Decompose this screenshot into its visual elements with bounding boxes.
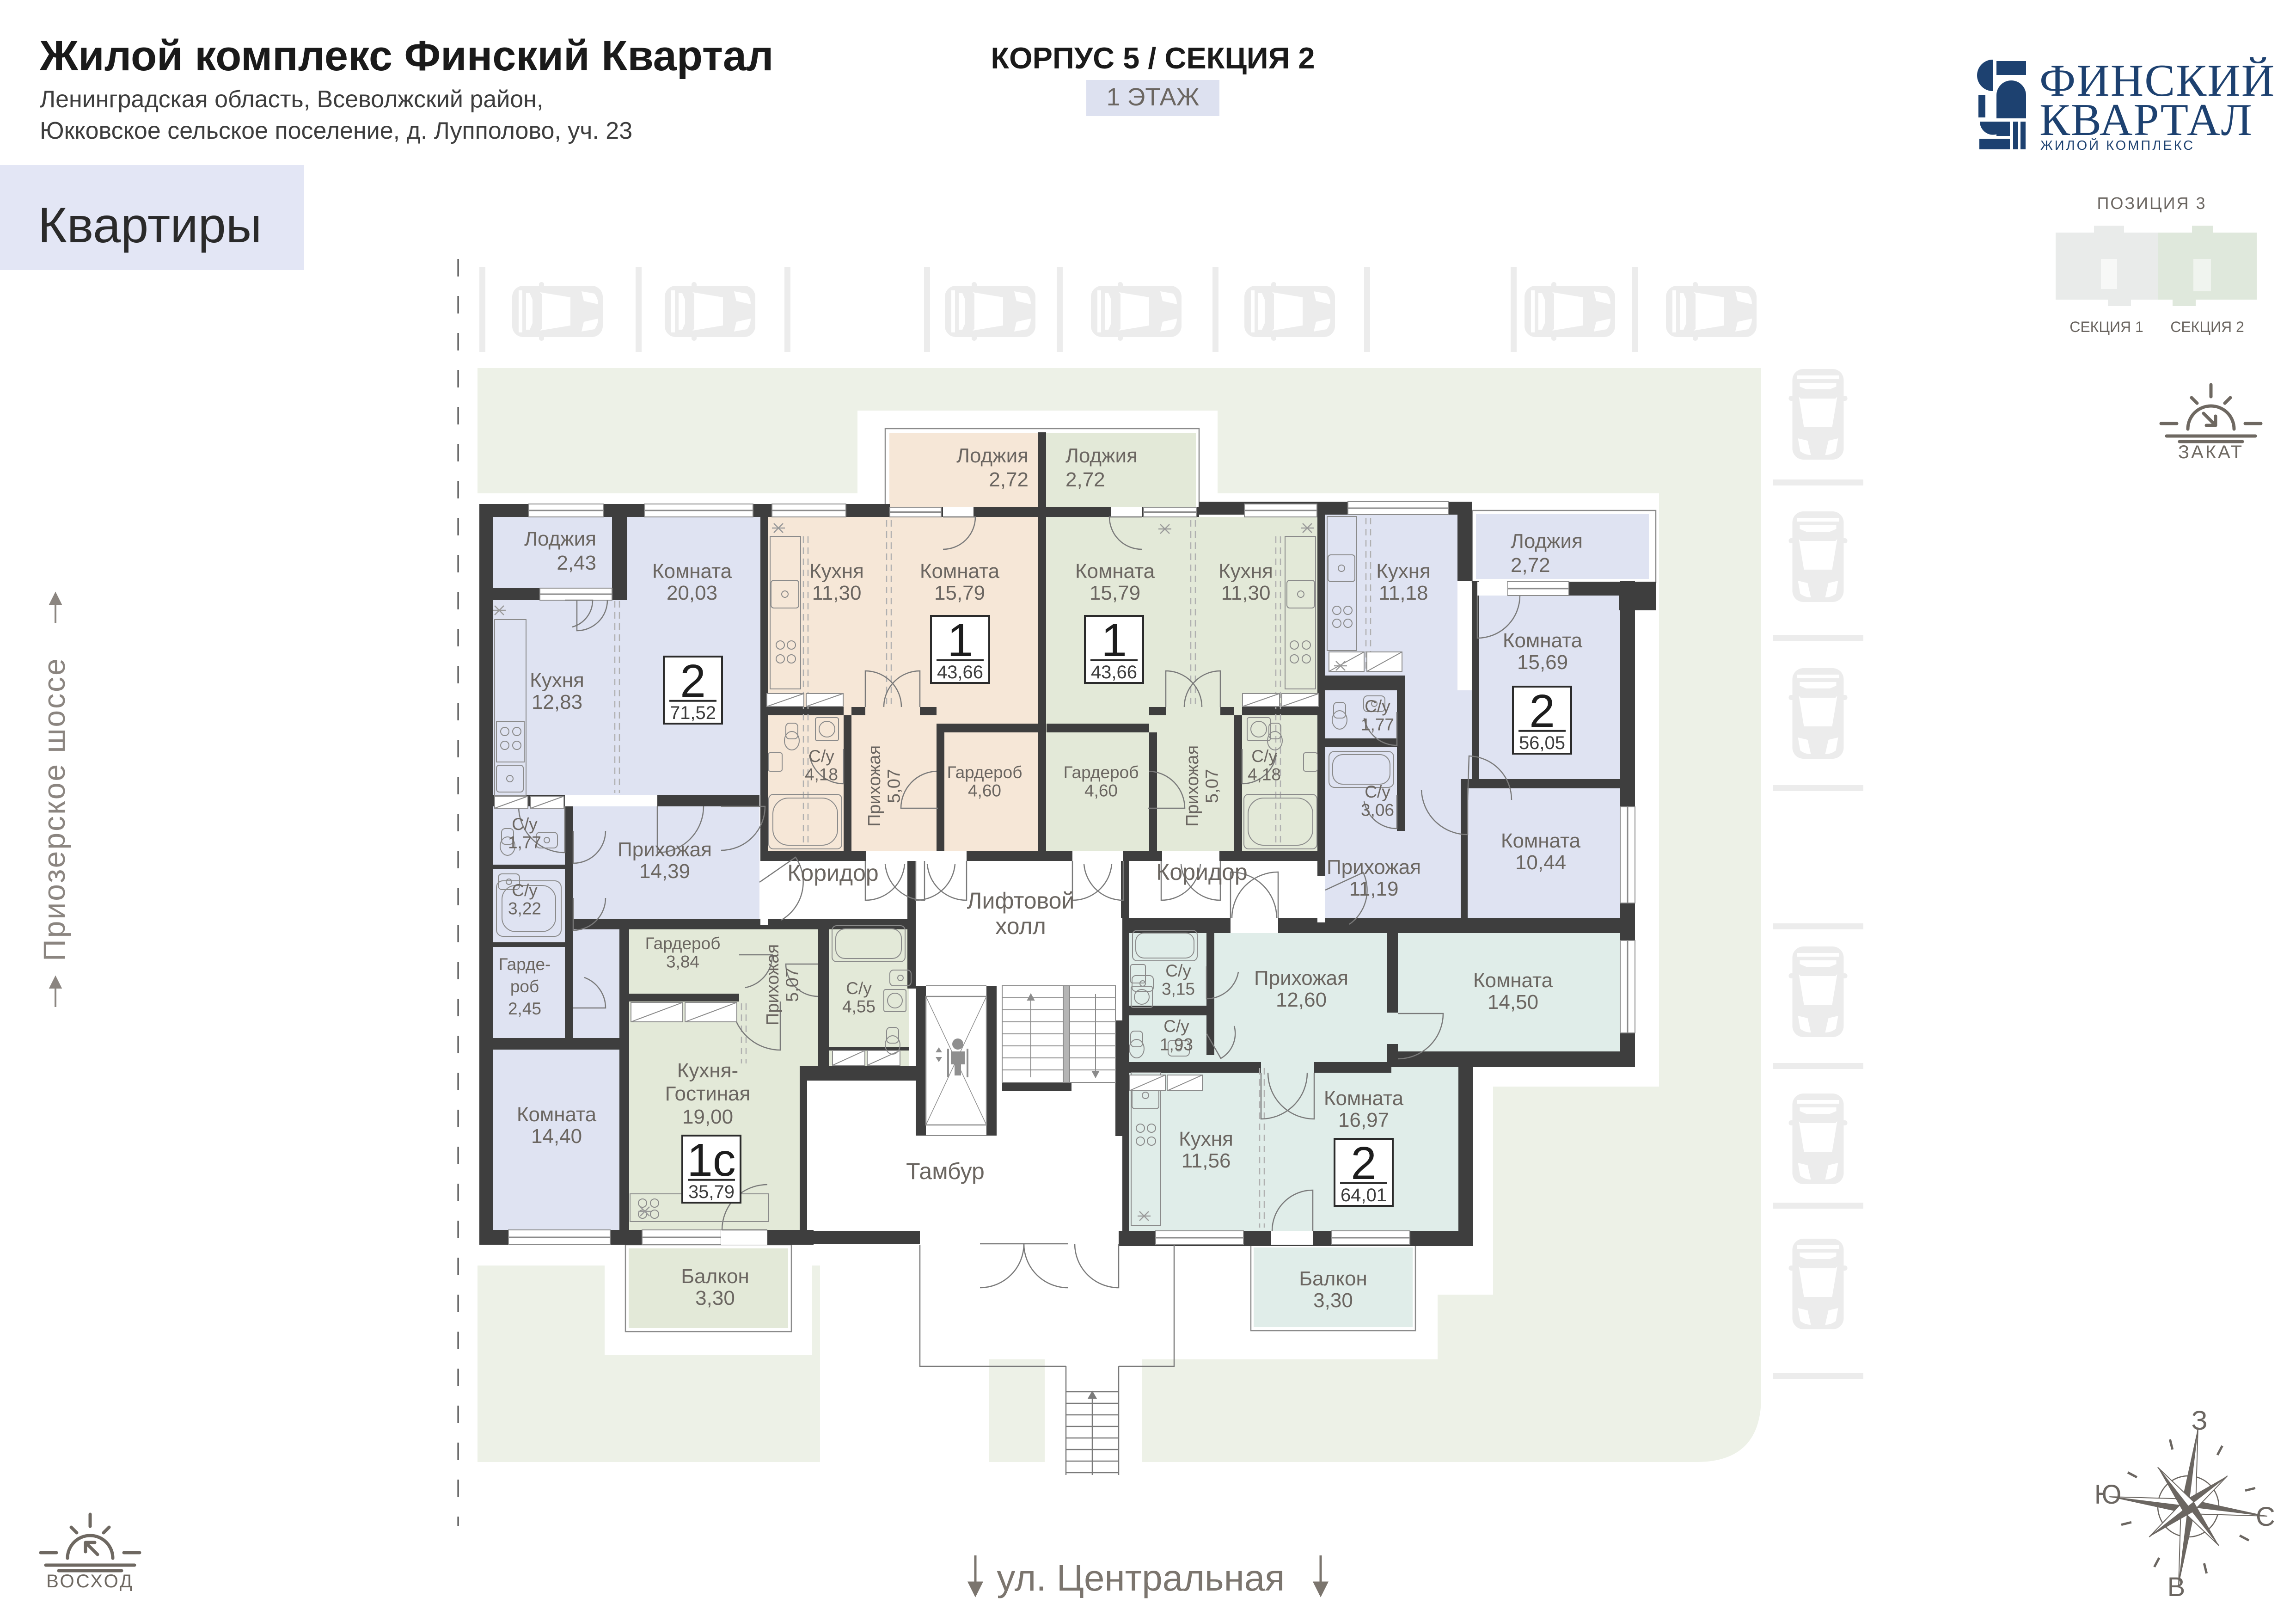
svg-text:14,40: 14,40 <box>531 1125 582 1148</box>
svg-text:Гардероб: Гардероб <box>645 934 721 953</box>
svg-text:Лоджия: Лоджия <box>1511 530 1583 553</box>
svg-text:Гарде-: Гарде- <box>499 955 551 974</box>
svg-text:56,05: 56,05 <box>1519 733 1565 753</box>
svg-text:Лоджия: Лоджия <box>1065 444 1138 467</box>
svg-text:Комната: Комната <box>1501 829 1581 852</box>
svg-text:Приозерское шоссе: Приозерское шоссе <box>37 657 71 961</box>
svg-text:Гардероб: Гардероб <box>947 763 1022 782</box>
svg-text:19,00: 19,00 <box>682 1106 733 1128</box>
svg-text:16,97: 16,97 <box>1338 1109 1389 1131</box>
svg-text:2: 2 <box>1529 685 1555 737</box>
svg-text:4,18: 4,18 <box>1248 765 1281 784</box>
svg-text:5,07: 5,07 <box>885 769 904 803</box>
svg-text:20,03: 20,03 <box>667 582 717 604</box>
svg-text:11,19: 11,19 <box>1349 878 1399 900</box>
svg-text:ул. Центральная: ул. Центральная <box>997 1557 1285 1598</box>
svg-text:роб: роб <box>510 977 539 996</box>
svg-text:71,52: 71,52 <box>670 703 716 723</box>
svg-text:4,60: 4,60 <box>968 781 1001 800</box>
svg-text:3,06: 3,06 <box>1361 801 1394 820</box>
svg-text:С/у: С/у <box>1365 697 1390 716</box>
svg-text:4,60: 4,60 <box>1084 781 1118 800</box>
svg-text:С: С <box>2256 1502 2275 1532</box>
svg-text:Прихожая: Прихожая <box>1327 856 1421 879</box>
svg-text:Квартиры: Квартиры <box>38 197 262 253</box>
svg-text:4,18: 4,18 <box>805 765 838 784</box>
svg-text:3,22: 3,22 <box>508 899 541 918</box>
svg-text:11,18: 11,18 <box>1379 582 1428 604</box>
svg-text:15,69: 15,69 <box>1517 651 1568 674</box>
svg-text:С/у: С/у <box>1365 782 1390 801</box>
svg-text:5,07: 5,07 <box>1203 769 1222 803</box>
svg-text:ПОЗИЦИЯ 3: ПОЗИЦИЯ 3 <box>2097 194 2206 213</box>
svg-text:4,55: 4,55 <box>842 997 876 1016</box>
svg-text:3,84: 3,84 <box>666 952 699 971</box>
svg-text:2,43: 2,43 <box>557 552 596 574</box>
svg-text:11,30: 11,30 <box>1221 582 1271 604</box>
svg-text:3,30: 3,30 <box>695 1287 735 1309</box>
svg-text:С/у: С/у <box>846 979 872 998</box>
svg-text:2: 2 <box>680 655 706 707</box>
svg-text:Тамбур: Тамбур <box>906 1158 985 1184</box>
svg-text:В: В <box>2167 1572 2186 1602</box>
svg-text:Лифтовой: Лифтовой <box>967 888 1075 914</box>
svg-text:С/у: С/у <box>512 815 538 834</box>
svg-text:Прихожая: Прихожая <box>1183 745 1202 827</box>
svg-text:Прихожая: Прихожая <box>1254 967 1348 989</box>
svg-text:Ленинградская область, Всеволж: Ленинградская область, Всеволжский район… <box>40 86 543 113</box>
svg-text:З: З <box>2191 1406 2207 1436</box>
svg-text:11,56: 11,56 <box>1182 1149 1231 1172</box>
svg-text:Гостиная: Гостиная <box>665 1082 751 1105</box>
svg-text:Жилой комплекс Финский Квартал: Жилой комплекс Финский Квартал <box>39 32 774 80</box>
svg-text:ЖИЛОЙ КОМПЛЕКС: ЖИЛОЙ КОМПЛЕКС <box>2040 137 2195 153</box>
svg-text:СЕКЦИЯ 2: СЕКЦИЯ 2 <box>2170 319 2244 335</box>
svg-text:2: 2 <box>1351 1137 1377 1189</box>
svg-text:1: 1 <box>1101 614 1127 666</box>
svg-text:КВАРТАЛ: КВАРТАЛ <box>2039 95 2253 145</box>
svg-text:1с: 1с <box>687 1134 736 1186</box>
svg-text:12,83: 12,83 <box>532 691 582 713</box>
svg-text:1: 1 <box>947 614 973 666</box>
svg-text:2,72: 2,72 <box>1065 468 1105 491</box>
svg-text:СЕКЦИЯ 1: СЕКЦИЯ 1 <box>2069 319 2143 335</box>
svg-text:10,44: 10,44 <box>1515 851 1566 874</box>
svg-text:Кухня: Кухня <box>1179 1128 1233 1150</box>
svg-text:1,93: 1,93 <box>1160 1035 1193 1054</box>
svg-text:1 ЭТАЖ: 1 ЭТАЖ <box>1107 83 1200 111</box>
svg-text:С/у: С/у <box>1163 1017 1189 1036</box>
svg-text:холл: холл <box>995 913 1046 939</box>
svg-text:Прихожая: Прихожая <box>618 838 712 861</box>
svg-text:15,79: 15,79 <box>1090 582 1140 604</box>
svg-text:64,01: 64,01 <box>1341 1185 1387 1205</box>
svg-text:Прихожая: Прихожая <box>763 944 783 1026</box>
svg-text:2,72: 2,72 <box>989 468 1029 491</box>
svg-text:С/у: С/у <box>1251 747 1277 766</box>
svg-text:2,72: 2,72 <box>1511 554 1550 577</box>
svg-text:Комната: Комната <box>1473 969 1553 992</box>
svg-text:Кухня: Кухня <box>809 560 864 583</box>
svg-text:Кухня: Кухня <box>1218 560 1273 583</box>
svg-text:Комната: Комната <box>1075 560 1155 583</box>
svg-text:Ю: Ю <box>2094 1480 2122 1510</box>
svg-text:Комната: Комната <box>920 560 1000 583</box>
svg-text:Лоджия: Лоджия <box>524 528 596 550</box>
svg-text:Лоджия: Лоджия <box>956 444 1029 467</box>
svg-text:Коридор: Коридор <box>787 860 878 886</box>
svg-text:Гардероб: Гардероб <box>1064 763 1139 782</box>
svg-text:Комната: Комната <box>652 560 732 583</box>
svg-text:Балкон: Балкон <box>1299 1267 1367 1290</box>
svg-text:Комната: Комната <box>1324 1087 1404 1110</box>
svg-text:КОРПУС 5 / СЕКЦИЯ 2: КОРПУС 5 / СЕКЦИЯ 2 <box>991 41 1315 75</box>
svg-text:2,45: 2,45 <box>508 999 541 1018</box>
svg-text:Комната: Комната <box>517 1103 597 1126</box>
svg-text:43,66: 43,66 <box>1091 662 1137 682</box>
svg-text:35,79: 35,79 <box>688 1182 735 1202</box>
svg-text:С/у: С/у <box>1165 961 1191 980</box>
svg-text:Кухня-: Кухня- <box>677 1059 738 1082</box>
svg-text:Кухня: Кухня <box>1376 560 1431 583</box>
svg-text:1,77: 1,77 <box>1361 715 1394 734</box>
svg-text:43,66: 43,66 <box>937 662 983 682</box>
svg-text:Юкковское сельское поселение,: Юкковское сельское поселение, д. Лупполо… <box>40 117 632 144</box>
svg-text:3,15: 3,15 <box>1162 980 1195 999</box>
svg-text:С/у: С/у <box>808 747 834 766</box>
svg-text:Кухня: Кухня <box>530 669 584 692</box>
svg-text:С/у: С/у <box>512 881 538 900</box>
svg-text:ВОСХОД: ВОСХОД <box>46 1571 134 1591</box>
svg-text:5,07: 5,07 <box>783 968 802 1002</box>
svg-text:Балкон: Балкон <box>681 1265 749 1288</box>
svg-text:11,30: 11,30 <box>812 582 862 604</box>
svg-text:12,60: 12,60 <box>1276 989 1327 1011</box>
svg-text:15,79: 15,79 <box>934 582 985 604</box>
svg-text:1,77: 1,77 <box>508 833 541 852</box>
svg-text:14,39: 14,39 <box>639 860 690 883</box>
svg-text:ЗАКАТ: ЗАКАТ <box>2178 442 2244 462</box>
svg-text:Прихожая: Прихожая <box>865 745 884 827</box>
svg-text:Комната: Комната <box>1503 629 1583 652</box>
svg-text:3,30: 3,30 <box>1313 1289 1353 1312</box>
svg-text:14,50: 14,50 <box>1488 991 1538 1014</box>
svg-text:Коридор: Коридор <box>1156 859 1247 885</box>
